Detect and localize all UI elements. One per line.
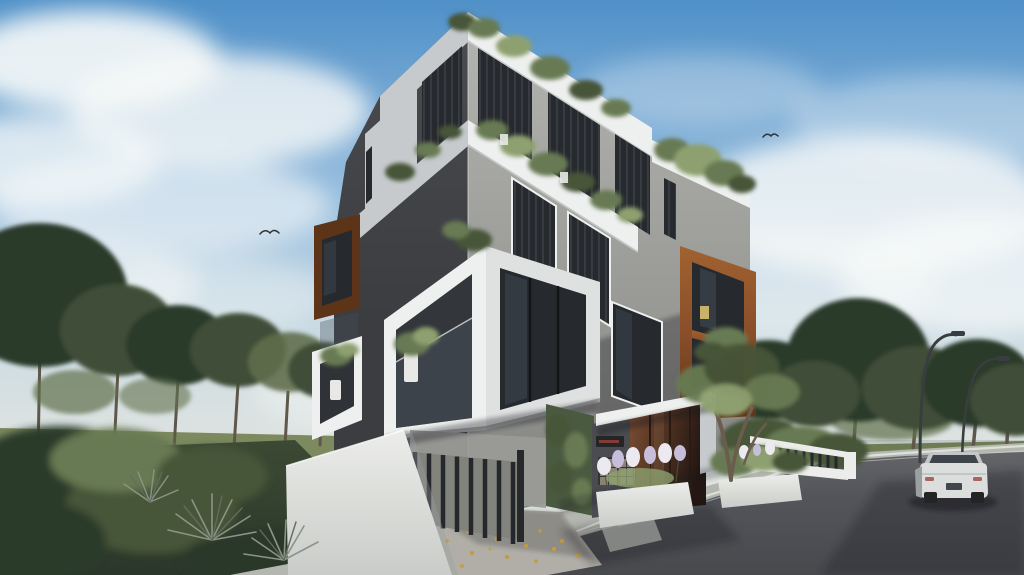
window-right-of-box (612, 302, 662, 414)
render-viewport: Exterior 3D rendering of a modern apartm… (0, 0, 1024, 575)
entrance-sign (596, 436, 624, 447)
corten-box-left (314, 214, 360, 350)
architectural-render: Exterior 3D rendering of a modern apartm… (0, 0, 1024, 575)
